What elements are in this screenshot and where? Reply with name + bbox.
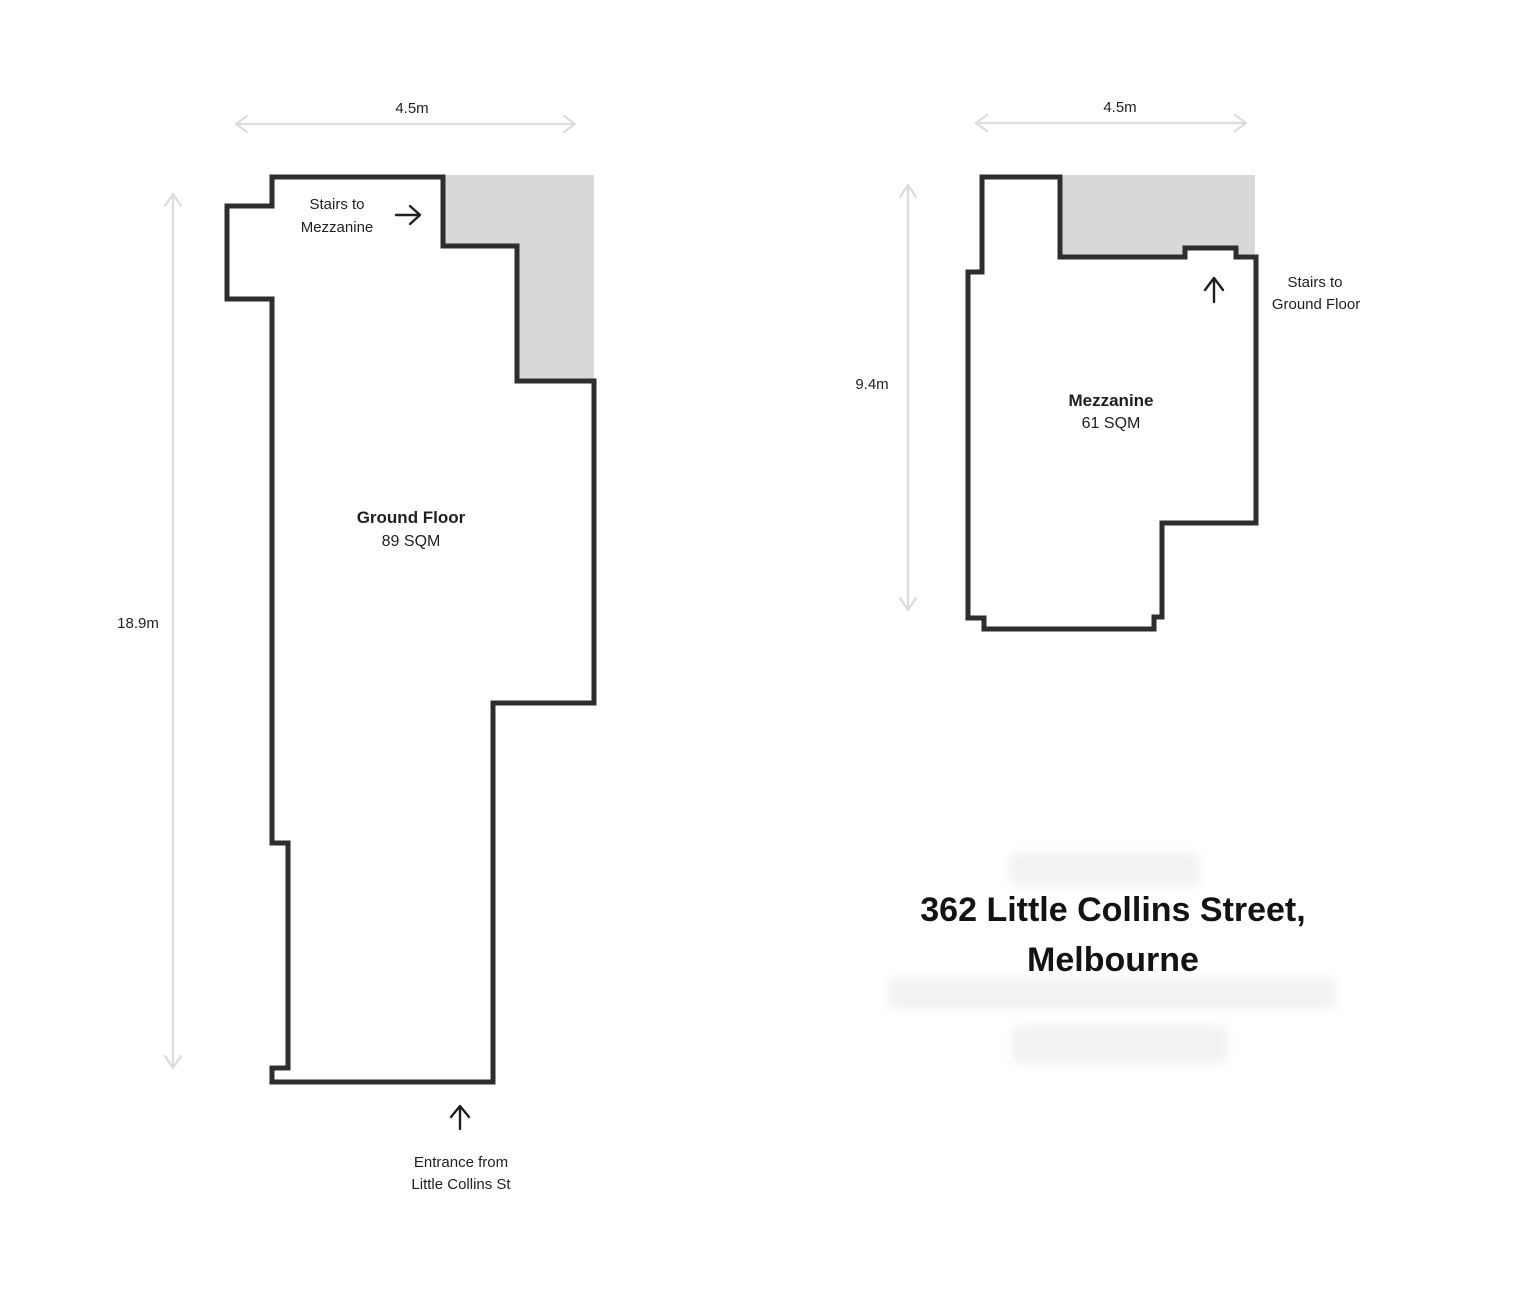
- stairs-to-mezzanine-label-line1: Stairs to: [309, 196, 364, 213]
- entrance-label-line1: Entrance from: [414, 1154, 508, 1171]
- ground-floor-height-label: 18.9m: [117, 615, 159, 632]
- mezzanine-void-area: [1060, 175, 1255, 257]
- mezzanine-width-label: 4.5m: [1103, 99, 1136, 116]
- mezzanine-plan: 4.5m 9.4m Stairs to Ground Floor Mezzani…: [855, 99, 1360, 629]
- ground-floor-plan: 4.5m 18.9m Stairs to Mezzanine Ground Fl…: [117, 100, 594, 1193]
- entrance-label-line2: Little Collins St: [411, 1176, 511, 1193]
- page-title-line1: 362 Little Collins Street,: [920, 891, 1305, 929]
- page-title-line2: Melbourne: [1027, 941, 1199, 979]
- floor-plan-drawing: 4.5m 18.9m Stairs to Mezzanine Ground Fl…: [0, 0, 1527, 1290]
- page-title: 362 Little Collins Street, Melbourne: [920, 891, 1305, 979]
- mezzanine-height-dimension: 9.4m: [855, 185, 916, 610]
- ground-floor-area: 89 SQM: [382, 533, 441, 550]
- floor-plan-page: 4.5m 18.9m Stairs to Mezzanine Ground Fl…: [0, 0, 1527, 1290]
- mezzanine-name: Mezzanine: [1068, 391, 1153, 410]
- mezzanine-area: 61 SQM: [1082, 415, 1141, 432]
- mezzanine-height-label: 9.4m: [855, 376, 888, 393]
- ground-floor-width-dimension: 4.5m: [236, 100, 575, 132]
- ground-floor-entrance-annotation: Entrance from Little Collins St: [411, 1106, 511, 1193]
- mezzanine-width-dimension: 4.5m: [976, 99, 1246, 131]
- ground-floor-name: Ground Floor: [357, 508, 466, 527]
- stairs-to-ground-label-line1: Stairs to: [1287, 274, 1342, 291]
- arrow-up-icon: [451, 1106, 469, 1129]
- ground-floor-height-dimension: 18.9m: [117, 194, 181, 1068]
- stairs-to-ground-label-line2: Ground Floor: [1272, 296, 1360, 313]
- stairs-to-mezzanine-label-line2: Mezzanine: [301, 219, 374, 236]
- ground-floor-width-label: 4.5m: [395, 100, 428, 117]
